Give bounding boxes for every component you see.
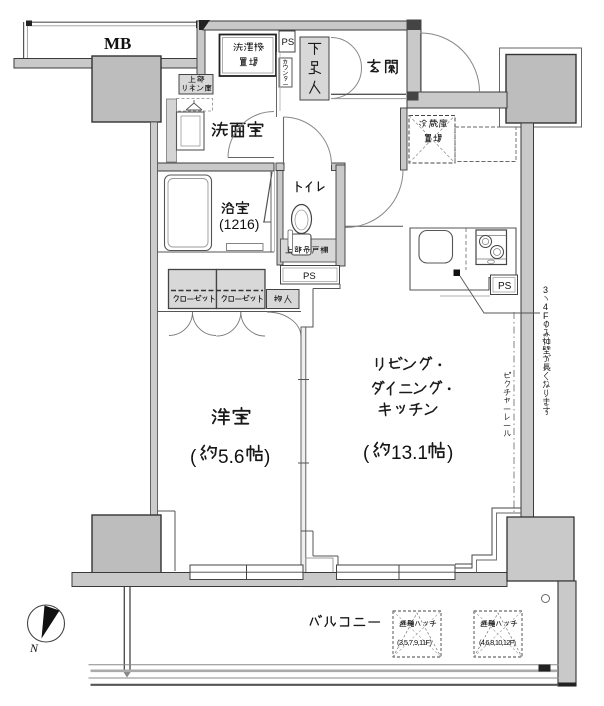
svg-text:(: ( <box>363 443 370 464</box>
svg-text:(3,5,7,9,11F): (3,5,7,9,11F) <box>397 638 433 647</box>
svg-text:(1216): (1216) <box>219 216 259 232</box>
svg-text:PS: PS <box>498 281 512 292</box>
svg-text:(: ( <box>190 447 197 468</box>
svg-text:(4,6,8,10,12F): (4,6,8,10,12F) <box>479 638 517 647</box>
svg-text:PS: PS <box>282 37 295 48</box>
svg-text:F: F <box>543 311 549 321</box>
svg-text:5.6: 5.6 <box>218 447 244 468</box>
svg-text:13.1: 13.1 <box>391 443 428 464</box>
svg-text:): ) <box>264 447 270 468</box>
svg-text:N: N <box>29 641 39 655</box>
svg-text:MB: MB <box>104 34 131 53</box>
svg-text:PS: PS <box>303 271 316 282</box>
svg-text:3: 3 <box>543 285 548 295</box>
svg-text:): ) <box>447 443 453 464</box>
